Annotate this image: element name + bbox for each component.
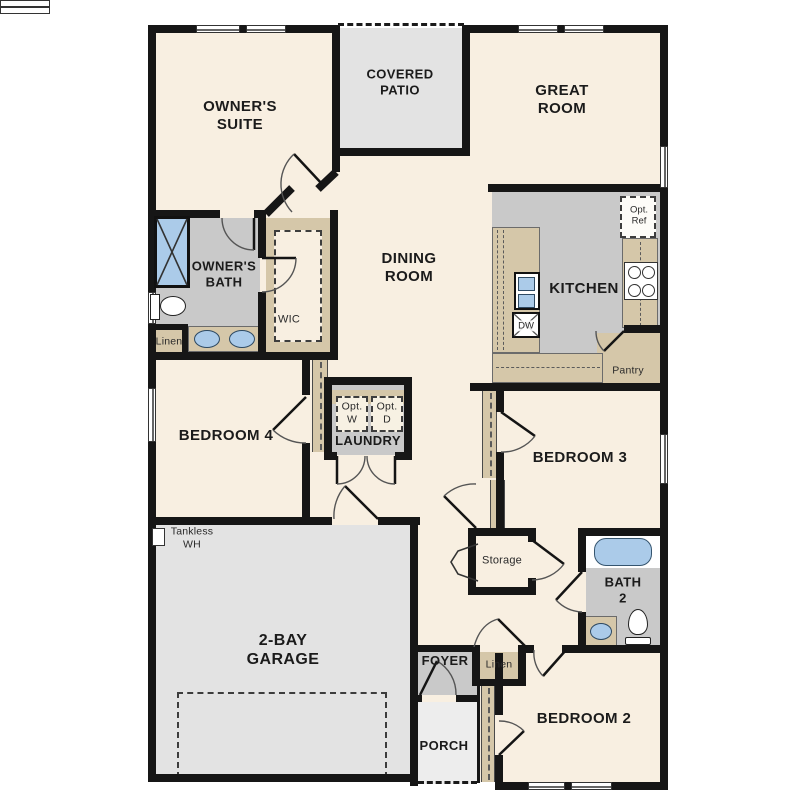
patio-roof-dashed-edge: [338, 23, 464, 30]
room-label-kitchen: KITCHEN: [549, 280, 618, 298]
window: [660, 434, 668, 484]
wall: [472, 679, 526, 686]
label-pantry: Pantry: [612, 365, 644, 378]
room-label-laundry: LAUNDRY: [335, 433, 401, 449]
wall: [495, 755, 503, 790]
wall: [148, 517, 332, 525]
room-label-owners-suite: OWNER'S SUITE: [203, 98, 277, 134]
window: [518, 25, 558, 33]
wall: [528, 536, 536, 542]
room-label-bedroom-2: BEDROOM 2: [537, 710, 631, 728]
wall: [330, 210, 338, 360]
wall: [578, 528, 668, 536]
toilet-bowl-icon: [160, 296, 186, 316]
hall-strip: [482, 391, 497, 478]
wall: [624, 325, 660, 333]
label-opt-ref: Opt. Ref: [630, 205, 648, 228]
vanity-sink-icon: [194, 330, 220, 348]
wall: [578, 536, 586, 572]
wall: [470, 383, 668, 391]
wall: [332, 148, 470, 156]
window: [196, 25, 240, 33]
room-label-bedroom-3: BEDROOM 3: [533, 449, 627, 467]
toilet-tank-icon: [150, 294, 160, 320]
wall: [324, 377, 332, 460]
sink-basin-icon: [518, 294, 535, 308]
window: [246, 25, 286, 33]
wall: [395, 452, 412, 460]
room-label-great-room: GREAT ROOM: [535, 82, 588, 118]
wall: [578, 645, 668, 653]
toilet-base-icon: [625, 637, 651, 645]
wall: [302, 443, 310, 517]
sink-basin-icon: [518, 277, 535, 291]
wall: [660, 25, 668, 790]
room-label-dining-room: DINING ROOM: [382, 250, 437, 286]
room-label-porch: PORCH: [420, 738, 469, 754]
window: [564, 25, 604, 33]
sliding-door-panel: [0, 0, 50, 7]
room-label-bath-2: BATH 2: [605, 574, 642, 605]
wall: [302, 352, 310, 395]
porch-dashed-edge: [418, 781, 477, 788]
wall: [410, 695, 422, 702]
label-storage: Storage: [482, 554, 522, 567]
garage-door-dashed: [177, 692, 387, 778]
window: [528, 782, 565, 790]
wall: [148, 25, 340, 33]
wall: [468, 536, 476, 587]
wall: [324, 377, 412, 385]
wall: [182, 324, 188, 358]
bathtub-icon: [594, 538, 652, 566]
label-linen-hall: Linen: [486, 659, 513, 672]
room-label-garage: 2-BAY GARAGE: [247, 631, 320, 669]
counter-dash-line: [497, 230, 498, 350]
bath2-sink-icon: [590, 623, 612, 640]
wall: [562, 645, 586, 653]
label-tankless-wh: Tankless WH: [171, 525, 213, 550]
label-opt-washer: Opt. W: [342, 400, 363, 425]
window: [571, 782, 612, 790]
label-dishwasher: DW: [517, 320, 535, 331]
label-linen-bath: Linen: [156, 336, 183, 349]
wall: [468, 587, 536, 595]
wall: [410, 645, 474, 652]
wall: [324, 452, 337, 460]
wall: [258, 210, 266, 258]
window: [148, 388, 156, 442]
wall: [477, 686, 480, 783]
label-opt-dryer: Opt. D: [377, 400, 398, 425]
wall: [468, 528, 536, 536]
counter-dash-line: [503, 230, 504, 350]
shower-icon: [154, 216, 190, 288]
wall: [528, 578, 536, 587]
tankless-water-heater-icon: [152, 528, 165, 546]
kitchen-bottom-counter: [492, 353, 603, 383]
sliding-door-panel: [0, 7, 50, 14]
room-label-covered-patio: COVERED PATIO: [366, 66, 433, 97]
floor-plan-page: OWNER'S SUITE COVERED PATIO GREAT ROOM O…: [0, 0, 810, 810]
room-label-wic: WIC: [278, 313, 300, 326]
wall: [496, 391, 504, 412]
hall-strip: [481, 686, 495, 782]
wall: [488, 184, 662, 192]
floor-plan: OWNER'S SUITE COVERED PATIO GREAT ROOM O…: [0, 0, 810, 810]
wall: [456, 695, 478, 702]
wall: [404, 377, 412, 460]
wall: [148, 517, 156, 782]
window: [660, 146, 668, 188]
room-label-owners-bath: OWNER'S BATH: [192, 258, 256, 289]
wall: [258, 292, 266, 360]
range-icon: [624, 262, 658, 300]
room-label-bedroom-4: BEDROOM 4: [179, 427, 273, 445]
wall: [496, 452, 504, 530]
vanity-sink-icon: [229, 330, 255, 348]
toilet-bowl-icon: [628, 609, 648, 635]
room-label-foyer: FOYER: [422, 653, 469, 669]
wall: [148, 774, 418, 782]
wall: [462, 25, 470, 156]
counter-dash-line: [496, 367, 600, 368]
